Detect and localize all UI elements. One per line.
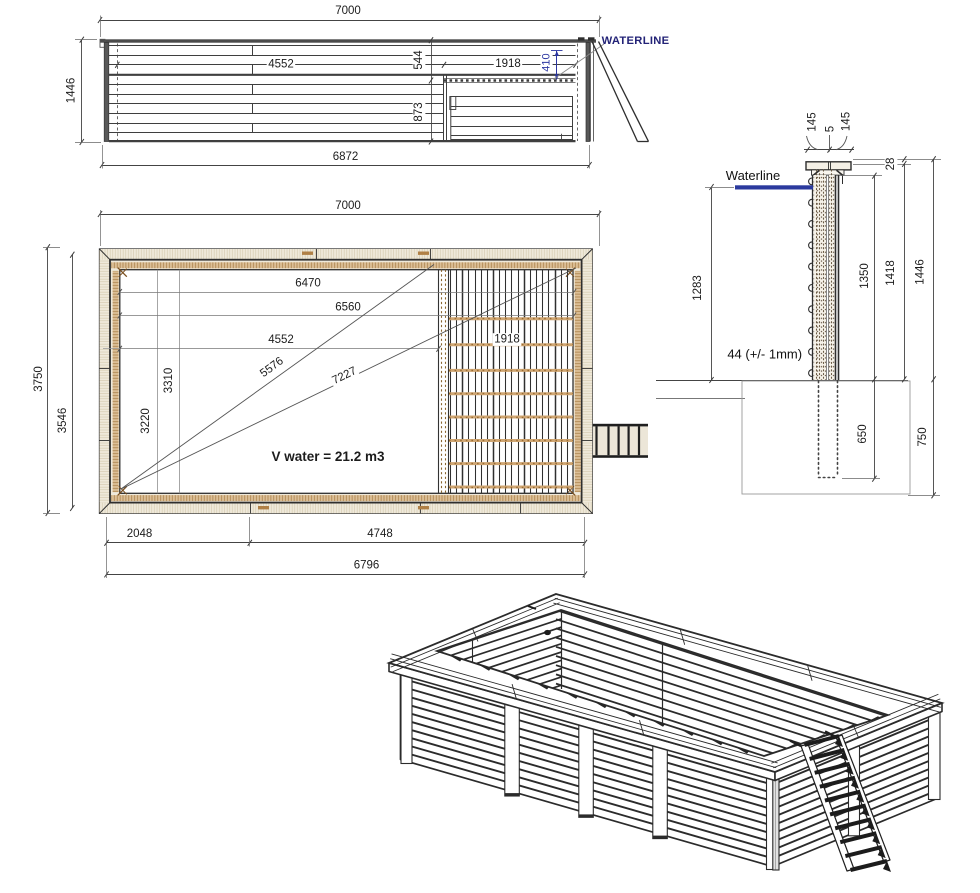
svg-text:6796: 6796 xyxy=(354,560,380,572)
svg-text:6470: 6470 xyxy=(295,278,321,290)
svg-text:5: 5 xyxy=(825,126,837,132)
svg-text:1918: 1918 xyxy=(495,58,521,70)
svg-text:3750: 3750 xyxy=(33,366,45,392)
svg-text:1446: 1446 xyxy=(66,78,78,104)
svg-text:1350: 1350 xyxy=(859,263,871,289)
svg-text:V water = 21.2 m3: V water = 21.2 m3 xyxy=(272,449,385,464)
svg-text:3546: 3546 xyxy=(57,408,69,434)
svg-text:4552: 4552 xyxy=(268,59,294,71)
svg-text:2048: 2048 xyxy=(127,528,153,540)
svg-text:145: 145 xyxy=(807,112,819,131)
svg-text:1283: 1283 xyxy=(692,275,704,301)
svg-text:7000: 7000 xyxy=(335,5,361,17)
svg-text:3310: 3310 xyxy=(163,368,175,394)
svg-text:4552: 4552 xyxy=(268,334,294,346)
svg-text:410: 410 xyxy=(541,53,553,71)
svg-text:3220: 3220 xyxy=(140,408,152,434)
svg-text:1446: 1446 xyxy=(915,259,927,285)
svg-text:650: 650 xyxy=(857,424,869,443)
svg-text:145: 145 xyxy=(841,112,853,131)
svg-text:6872: 6872 xyxy=(333,151,359,163)
svg-text:44 (+/- 1mm): 44 (+/- 1mm) xyxy=(727,347,802,362)
svg-text:873: 873 xyxy=(413,102,425,121)
svg-text:6560: 6560 xyxy=(335,302,361,314)
svg-text:1418: 1418 xyxy=(885,260,897,286)
svg-text:28: 28 xyxy=(885,158,897,171)
svg-text:750: 750 xyxy=(917,427,929,446)
svg-text:Waterline: Waterline xyxy=(726,168,780,183)
svg-text:4748: 4748 xyxy=(367,528,393,540)
svg-text:1918: 1918 xyxy=(494,334,520,346)
svg-text:WATERLINE: WATERLINE xyxy=(602,35,670,47)
svg-text:7000: 7000 xyxy=(335,200,361,212)
svg-text:544: 544 xyxy=(413,50,425,70)
